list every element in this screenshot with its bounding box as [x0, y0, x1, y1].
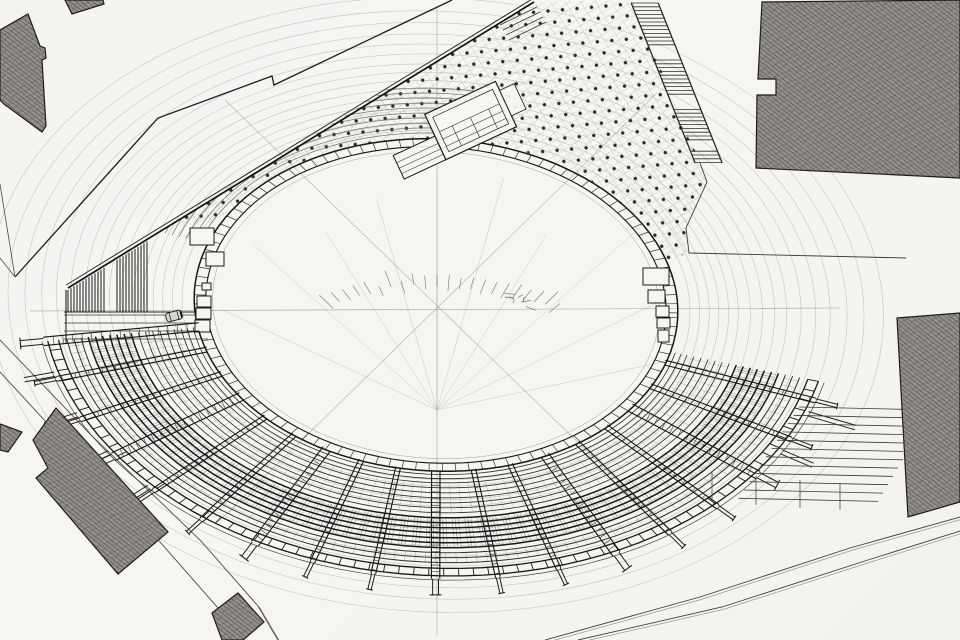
east-boundary	[686, 163, 906, 258]
gate-block	[657, 318, 670, 328]
gallery-divider	[808, 379, 819, 381]
gate-block	[197, 296, 211, 307]
radial-beam-rail	[665, 360, 815, 398]
wide-stair-tread	[739, 498, 879, 501]
gallery-divider	[324, 555, 327, 562]
west-road-edge	[0, 184, 15, 277]
wide-stair-tread	[788, 424, 903, 427]
building-top-right-texture	[756, 0, 960, 178]
band-brick-tick	[665, 295, 677, 296]
gallery-divider	[545, 560, 548, 567]
beam-rung	[120, 449, 124, 457]
gallery-divider	[473, 568, 474, 576]
building-mid-right-texture	[897, 313, 960, 517]
radial-beam-rail	[310, 459, 359, 561]
gallery-divider	[215, 517, 221, 523]
gallery-divider	[517, 565, 519, 572]
beam-stub	[792, 438, 813, 446]
gallery-divider	[67, 388, 77, 390]
gallery-divider	[191, 505, 198, 511]
gallery-divider	[754, 461, 763, 465]
gallery-divider	[339, 558, 342, 565]
gallery-divider	[109, 443, 118, 447]
gate-block	[656, 306, 669, 317]
gallery-divider	[127, 460, 136, 464]
gallery-divider	[296, 547, 300, 554]
wide-stair-tread	[783, 432, 904, 435]
gallery-divider	[795, 408, 805, 411]
southeast-road-edge	[545, 517, 960, 640]
wide-stair-tread	[755, 473, 893, 476]
beam-stub	[557, 570, 564, 586]
gallery-divider	[728, 484, 736, 489]
beam-stub	[500, 577, 504, 593]
gallery-divider	[458, 569, 459, 577]
gallery-divider	[399, 566, 400, 573]
gallery-divider	[50, 349, 61, 350]
beam-rung	[609, 545, 616, 550]
gate-block	[195, 320, 210, 332]
gate-block	[202, 283, 211, 290]
gallery-divider	[369, 563, 371, 570]
gallery-divider	[384, 565, 385, 572]
gallery-divider	[770, 444, 780, 448]
gallery-divider	[354, 560, 356, 567]
gallery-divider	[414, 567, 415, 574]
radial-beam-rail	[44, 331, 200, 346]
gate-block	[196, 308, 211, 319]
gate-block	[190, 228, 214, 245]
gallery-divider	[573, 555, 577, 562]
gallery-divider	[137, 468, 145, 473]
gallery-divider	[168, 491, 175, 496]
beam-rung	[256, 535, 263, 540]
gallery-divider	[686, 511, 693, 517]
gallery-divider	[58, 369, 68, 371]
gallery-divider	[626, 539, 631, 546]
wide-stair-tread	[799, 407, 903, 409]
beam-stub	[304, 561, 311, 576]
gallery-divider	[651, 529, 657, 535]
gallery-divider	[101, 435, 110, 439]
beam-stub	[790, 441, 811, 449]
gallery-divider	[488, 567, 490, 575]
beam-stub-cap	[20, 338, 21, 350]
beam-stub	[368, 573, 372, 589]
gallery-divider	[587, 551, 591, 558]
gate-block	[658, 330, 669, 342]
gate-block	[648, 290, 665, 303]
beam-stub-cap	[681, 544, 686, 549]
gallery-divider	[697, 505, 704, 511]
wide-stair-tread	[772, 449, 904, 452]
gallery-divider	[93, 426, 102, 429]
beam-tail	[24, 372, 55, 378]
gallery-divider	[804, 389, 814, 391]
gallery-divider	[282, 543, 286, 550]
gate-block	[206, 252, 224, 266]
beam-rung	[53, 336, 54, 344]
beam-stub	[496, 578, 500, 594]
building-top-left-texture	[0, 14, 46, 132]
wide-stair-tread	[744, 490, 883, 493]
amphitheater-plan-drawing	[0, 0, 960, 640]
beam-stub	[307, 563, 314, 578]
gallery-divider	[737, 476, 746, 481]
gallery-divider	[531, 563, 534, 570]
gallery-divider	[502, 566, 504, 573]
wide-stair-tread	[766, 457, 903, 460]
gallery-divider	[718, 491, 726, 496]
beam-stub	[371, 574, 375, 590]
architectural-site-plan	[0, 0, 960, 640]
gallery-divider	[600, 548, 605, 555]
gallery-divider	[179, 498, 186, 504]
gate-block	[643, 268, 669, 285]
gallery-divider	[268, 539, 273, 546]
beam-stub	[20, 339, 43, 341]
gallery-divider	[73, 398, 83, 401]
gallery-divider	[228, 523, 234, 529]
wide-stair-tread	[761, 465, 899, 468]
beam-stub	[560, 568, 567, 584]
gallery-divider	[783, 426, 793, 430]
gallery-divider	[147, 476, 155, 481]
gallery-divider	[639, 534, 645, 541]
gallery-divider	[241, 529, 246, 535]
beam-rung	[72, 335, 73, 343]
beam-rung	[130, 329, 131, 337]
gallery-divider	[789, 417, 799, 420]
beam-rung	[748, 467, 752, 474]
gallery-divider	[79, 407, 89, 410]
gallery-divider	[762, 452, 771, 456]
gallery-divider	[54, 359, 65, 361]
gallery-divider	[675, 518, 682, 524]
building-diamond-texture	[212, 593, 264, 640]
